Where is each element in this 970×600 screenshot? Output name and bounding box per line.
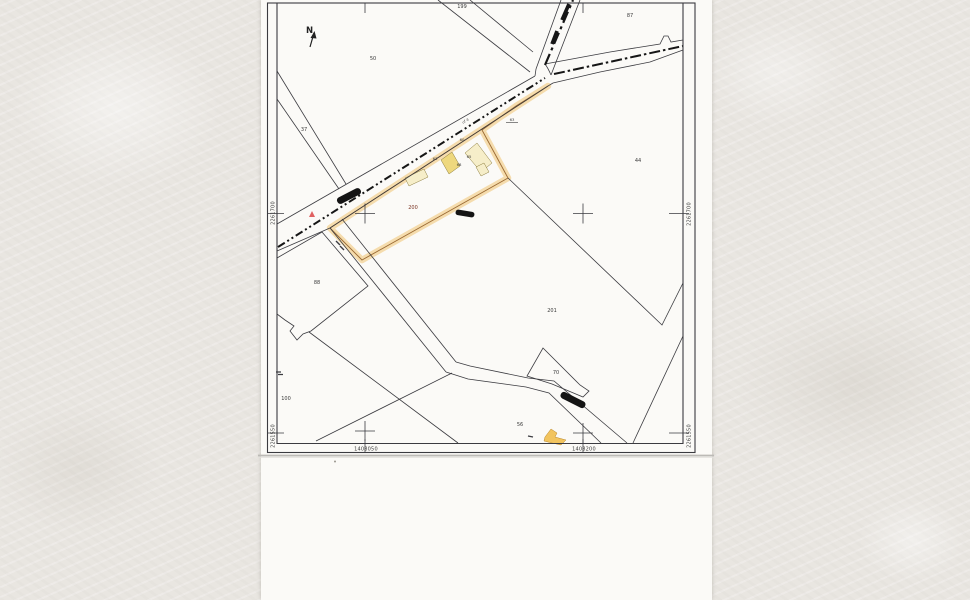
road-junction bbox=[535, 64, 553, 86]
paper-speck bbox=[334, 461, 336, 463]
building-gold bbox=[544, 429, 566, 445]
red-mark bbox=[309, 211, 315, 217]
road-edge-se bbox=[330, 86, 548, 228]
grid-labels: 1408050 1408200 2261700 2261550 2261700 … bbox=[271, 201, 693, 452]
boundary-199-w bbox=[438, 0, 530, 72]
road-parcel-label-63: 63 bbox=[510, 117, 515, 122]
cross-ne bbox=[573, 204, 593, 224]
north-label: N bbox=[306, 26, 313, 36]
road-south-edge-n bbox=[456, 362, 627, 443]
building-label-60: 60 bbox=[460, 137, 465, 142]
boundary-37-n bbox=[277, 71, 346, 184]
highlight-strip bbox=[330, 86, 548, 260]
highlight-boundary bbox=[330, 86, 548, 260]
road-east-edge-s bbox=[553, 50, 683, 83]
lane-edge-sw bbox=[330, 228, 446, 372]
parcel-label-199: 199 bbox=[457, 4, 467, 10]
cross-sw bbox=[355, 421, 375, 441]
grid-label-right-bottom: 2261550 bbox=[687, 424, 693, 448]
road-centerlines bbox=[278, 0, 683, 247]
parcel-label-50: 50 bbox=[370, 56, 376, 62]
parcel-label-200: 200 bbox=[408, 205, 418, 211]
parcel-label-70: 70 bbox=[553, 370, 559, 376]
viewer-canvas: N 199 87 50 37 44 201 88 100 70 56 200 6… bbox=[0, 0, 970, 600]
north-arrow: N bbox=[306, 26, 317, 47]
boundary-100-b bbox=[316, 373, 452, 441]
parcel-label-201: 201 bbox=[547, 308, 557, 314]
boundary-100-a bbox=[309, 332, 458, 443]
parcel-label-100: 100 bbox=[281, 396, 291, 402]
parcel-label-37: 37 bbox=[301, 127, 307, 133]
boundary-44-v bbox=[508, 178, 683, 325]
road-east-edge-n bbox=[545, 36, 683, 64]
tick-right bbox=[669, 214, 689, 434]
tick-top bbox=[365, 3, 583, 13]
boundary-corner-diagonal bbox=[633, 336, 683, 443]
centerline-east bbox=[554, 46, 683, 74]
centerline-north-bar1 bbox=[552, 31, 557, 44]
gold-building-mark bbox=[528, 436, 533, 437]
parcel-label-87: 87 bbox=[627, 13, 633, 19]
parcel-label-44: 44 bbox=[635, 158, 641, 164]
black-structures bbox=[336, 187, 587, 409]
grid-label-left-bottom: 2261550 bbox=[271, 424, 277, 448]
road-edge-se-west bbox=[277, 228, 330, 251]
boundary-37-s bbox=[277, 99, 339, 189]
highlight-edge-line bbox=[330, 86, 548, 260]
page-edges bbox=[258, 456, 714, 463]
grid-label-right-top: 2261700 bbox=[687, 202, 693, 226]
building-label-68: 68 bbox=[457, 162, 462, 167]
grid-label-left-top: 2261700 bbox=[271, 201, 277, 225]
building-label-63: 63 bbox=[433, 156, 438, 161]
centerline-main bbox=[278, 78, 545, 247]
parcel-label-56: 56 bbox=[517, 422, 523, 428]
grid-label-bottom-left: 1408050 bbox=[354, 447, 378, 453]
building-label-65: 65 bbox=[467, 154, 472, 159]
black-structure-2 bbox=[455, 209, 475, 218]
cadastral-map-scan: N 199 87 50 37 44 201 88 100 70 56 200 6… bbox=[0, 0, 970, 600]
cross-se bbox=[573, 423, 593, 443]
grid-label-bottom-right: 1408200 bbox=[572, 447, 596, 453]
boundary-199-e bbox=[470, 0, 533, 52]
parcel-label-88: 88 bbox=[314, 280, 320, 286]
